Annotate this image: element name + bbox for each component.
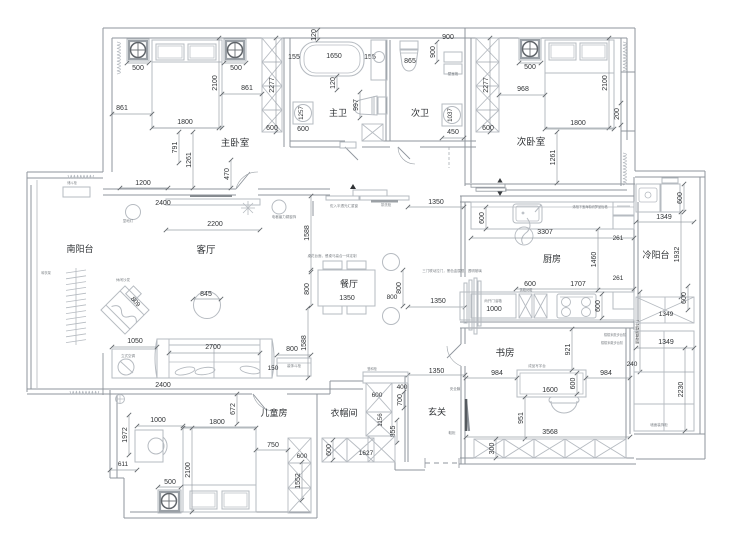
- svg-text:1800: 1800: [177, 119, 193, 126]
- svg-text:1650: 1650: [326, 53, 342, 60]
- svg-text:600: 600: [266, 125, 278, 132]
- svg-text:845: 845: [200, 291, 212, 298]
- svg-text:涤相下宝海棉织梦呈怡格: 涤相下宝海棉织梦呈怡格: [572, 204, 608, 209]
- svg-text:600: 600: [326, 444, 333, 456]
- svg-text:470: 470: [224, 168, 231, 180]
- svg-text:1349: 1349: [659, 311, 674, 318]
- svg-text:衣帽间: 衣帽间: [330, 407, 357, 418]
- svg-text:1350: 1350: [339, 295, 355, 302]
- svg-text:120: 120: [311, 29, 318, 41]
- svg-text:600: 600: [372, 392, 383, 399]
- svg-text:1261: 1261: [186, 152, 193, 168]
- svg-text:1000: 1000: [150, 417, 166, 424]
- svg-text:155: 155: [288, 54, 300, 61]
- svg-text:750: 750: [267, 442, 279, 449]
- svg-text:600: 600: [570, 378, 577, 390]
- svg-text:800: 800: [396, 282, 403, 294]
- svg-text:南阳台: 南阳台: [66, 243, 93, 254]
- svg-text:500: 500: [230, 65, 242, 72]
- svg-text:玄关: 玄关: [428, 406, 446, 417]
- svg-text:儿童房: 儿童房: [260, 407, 287, 418]
- svg-text:200: 200: [614, 108, 621, 120]
- svg-text:791: 791: [172, 142, 179, 154]
- svg-text:电著番力蜗窗饰: 电著番力蜗窗饰: [272, 214, 297, 219]
- svg-text:120: 120: [330, 77, 337, 89]
- svg-text:厨房: 厨房: [543, 253, 561, 264]
- svg-text:984: 984: [600, 370, 612, 377]
- svg-text:611: 611: [118, 461, 129, 468]
- svg-text:1350: 1350: [430, 298, 446, 305]
- svg-text:600: 600: [595, 300, 602, 312]
- svg-text:450: 450: [447, 129, 459, 136]
- svg-text:600: 600: [479, 212, 486, 224]
- svg-text:800: 800: [387, 294, 398, 301]
- svg-text:1627: 1627: [359, 450, 374, 457]
- svg-text:150: 150: [268, 365, 279, 372]
- svg-text:休闲沙发: 休闲沙发: [116, 277, 130, 282]
- svg-text:餐厅: 餐厅: [340, 278, 358, 289]
- svg-text:1000: 1000: [486, 306, 502, 313]
- svg-text:墙面装饰柜: 墙面装饰柜: [650, 422, 668, 427]
- svg-text:997: 997: [353, 99, 360, 111]
- svg-text:600: 600: [677, 192, 684, 204]
- svg-text:2400: 2400: [155, 382, 171, 389]
- svg-text:500: 500: [164, 479, 176, 486]
- svg-text:立式空调: 立式空调: [121, 353, 135, 358]
- svg-text:1707: 1707: [570, 281, 586, 288]
- svg-text:1037: 1037: [447, 108, 454, 122]
- svg-text:装饰斗柜: 装饰斗柜: [287, 363, 301, 368]
- svg-text:951: 951: [518, 412, 525, 424]
- svg-text:储斗柜: 储斗柜: [67, 180, 77, 185]
- svg-text:1200: 1200: [135, 180, 151, 187]
- svg-text:1050: 1050: [127, 338, 143, 345]
- svg-text:800: 800: [286, 346, 298, 353]
- svg-text:2100: 2100: [185, 462, 192, 478]
- svg-text:1600: 1600: [542, 387, 558, 394]
- svg-text:261: 261: [613, 235, 624, 242]
- svg-text:921: 921: [565, 344, 572, 356]
- svg-text:984: 984: [491, 370, 503, 377]
- svg-text:1350: 1350: [428, 199, 444, 206]
- svg-text:晾衣架: 晾衣架: [41, 270, 51, 275]
- svg-text:尚开门油箱: 尚开门油箱: [484, 298, 502, 303]
- svg-text:1257: 1257: [298, 106, 305, 120]
- svg-text:500: 500: [132, 65, 144, 72]
- svg-text:600: 600: [681, 292, 688, 304]
- svg-text:2200: 2200: [207, 221, 223, 228]
- svg-text:672: 672: [230, 403, 237, 415]
- svg-text:次卫: 次卫: [411, 107, 429, 118]
- svg-text:2230: 2230: [678, 382, 685, 398]
- svg-text:2277: 2277: [269, 77, 276, 93]
- svg-text:书房: 书房: [495, 347, 514, 359]
- svg-text:600: 600: [482, 125, 494, 132]
- svg-text:显地灯: 显地灯: [123, 218, 134, 223]
- svg-text:968: 968: [517, 86, 529, 93]
- svg-text:861: 861: [241, 85, 253, 92]
- svg-text:成品写字台: 成品写字台: [528, 363, 546, 368]
- svg-text:600: 600: [524, 281, 536, 288]
- svg-text:1552: 1552: [295, 473, 302, 489]
- svg-text:主卫: 主卫: [329, 107, 347, 118]
- svg-text:600: 600: [297, 453, 308, 460]
- svg-text:1972: 1972: [122, 427, 129, 443]
- svg-text:1350: 1350: [429, 368, 445, 375]
- svg-text:600: 600: [297, 126, 309, 133]
- svg-text:榻榻米敢步台阶: 榻榻米敢步台阶: [601, 340, 624, 345]
- svg-text:客厅: 客厅: [196, 244, 216, 256]
- svg-text:861: 861: [116, 105, 128, 112]
- svg-text:桌花台面，餐桌马高合一体定制: 桌花台面，餐桌马高合一体定制: [308, 253, 357, 258]
- svg-text:1800: 1800: [209, 419, 225, 426]
- svg-text:2100: 2100: [212, 75, 219, 91]
- svg-text:2400: 2400: [155, 200, 171, 207]
- svg-text:1588: 1588: [304, 225, 311, 241]
- svg-text:3568: 3568: [542, 429, 558, 436]
- svg-text:次卧室: 次卧室: [517, 136, 546, 148]
- svg-text:2277: 2277: [483, 77, 490, 93]
- svg-text:1800: 1800: [570, 120, 586, 127]
- svg-text:700: 700: [397, 394, 404, 406]
- svg-text:900: 900: [442, 34, 454, 41]
- svg-text:300: 300: [489, 443, 496, 455]
- svg-text:三门联动拉门，黑色金属框，透明玻璃: 三门联动拉门，黑色金属框，透明玻璃: [422, 268, 482, 273]
- svg-text:壁宝格: 壁宝格: [448, 71, 459, 76]
- svg-text:2700: 2700: [205, 344, 221, 351]
- svg-text:茶洗柜: 茶洗柜: [381, 202, 392, 207]
- svg-text:2100: 2100: [602, 75, 609, 91]
- svg-text:1588: 1588: [301, 335, 308, 351]
- svg-text:240: 240: [627, 361, 638, 368]
- svg-text:1156: 1156: [377, 413, 384, 427]
- svg-text:261: 261: [613, 275, 624, 282]
- svg-text:1349: 1349: [658, 339, 674, 346]
- svg-text:1261: 1261: [550, 150, 557, 166]
- svg-text:榻榻米散步台阶: 榻榻米散步台阶: [604, 332, 627, 337]
- svg-text:900: 900: [430, 46, 437, 58]
- svg-text:冷阳台: 冷阳台: [642, 249, 669, 260]
- svg-text:3307: 3307: [537, 229, 553, 236]
- svg-text:865: 865: [404, 58, 416, 65]
- svg-text:800: 800: [304, 283, 311, 295]
- svg-text:1932: 1932: [674, 247, 681, 263]
- svg-text:鞋柜: 鞋柜: [449, 430, 457, 435]
- svg-text:主卧室: 主卧室: [221, 137, 250, 149]
- svg-text:佐入半透光汇重窗: 佐入半透光汇重窗: [330, 203, 358, 208]
- svg-text:登和柜: 登和柜: [367, 366, 377, 371]
- svg-text:1460: 1460: [591, 252, 598, 268]
- svg-text:安全膜: 安全膜: [450, 386, 461, 391]
- svg-text:1349: 1349: [656, 214, 672, 221]
- svg-text:500: 500: [524, 64, 536, 71]
